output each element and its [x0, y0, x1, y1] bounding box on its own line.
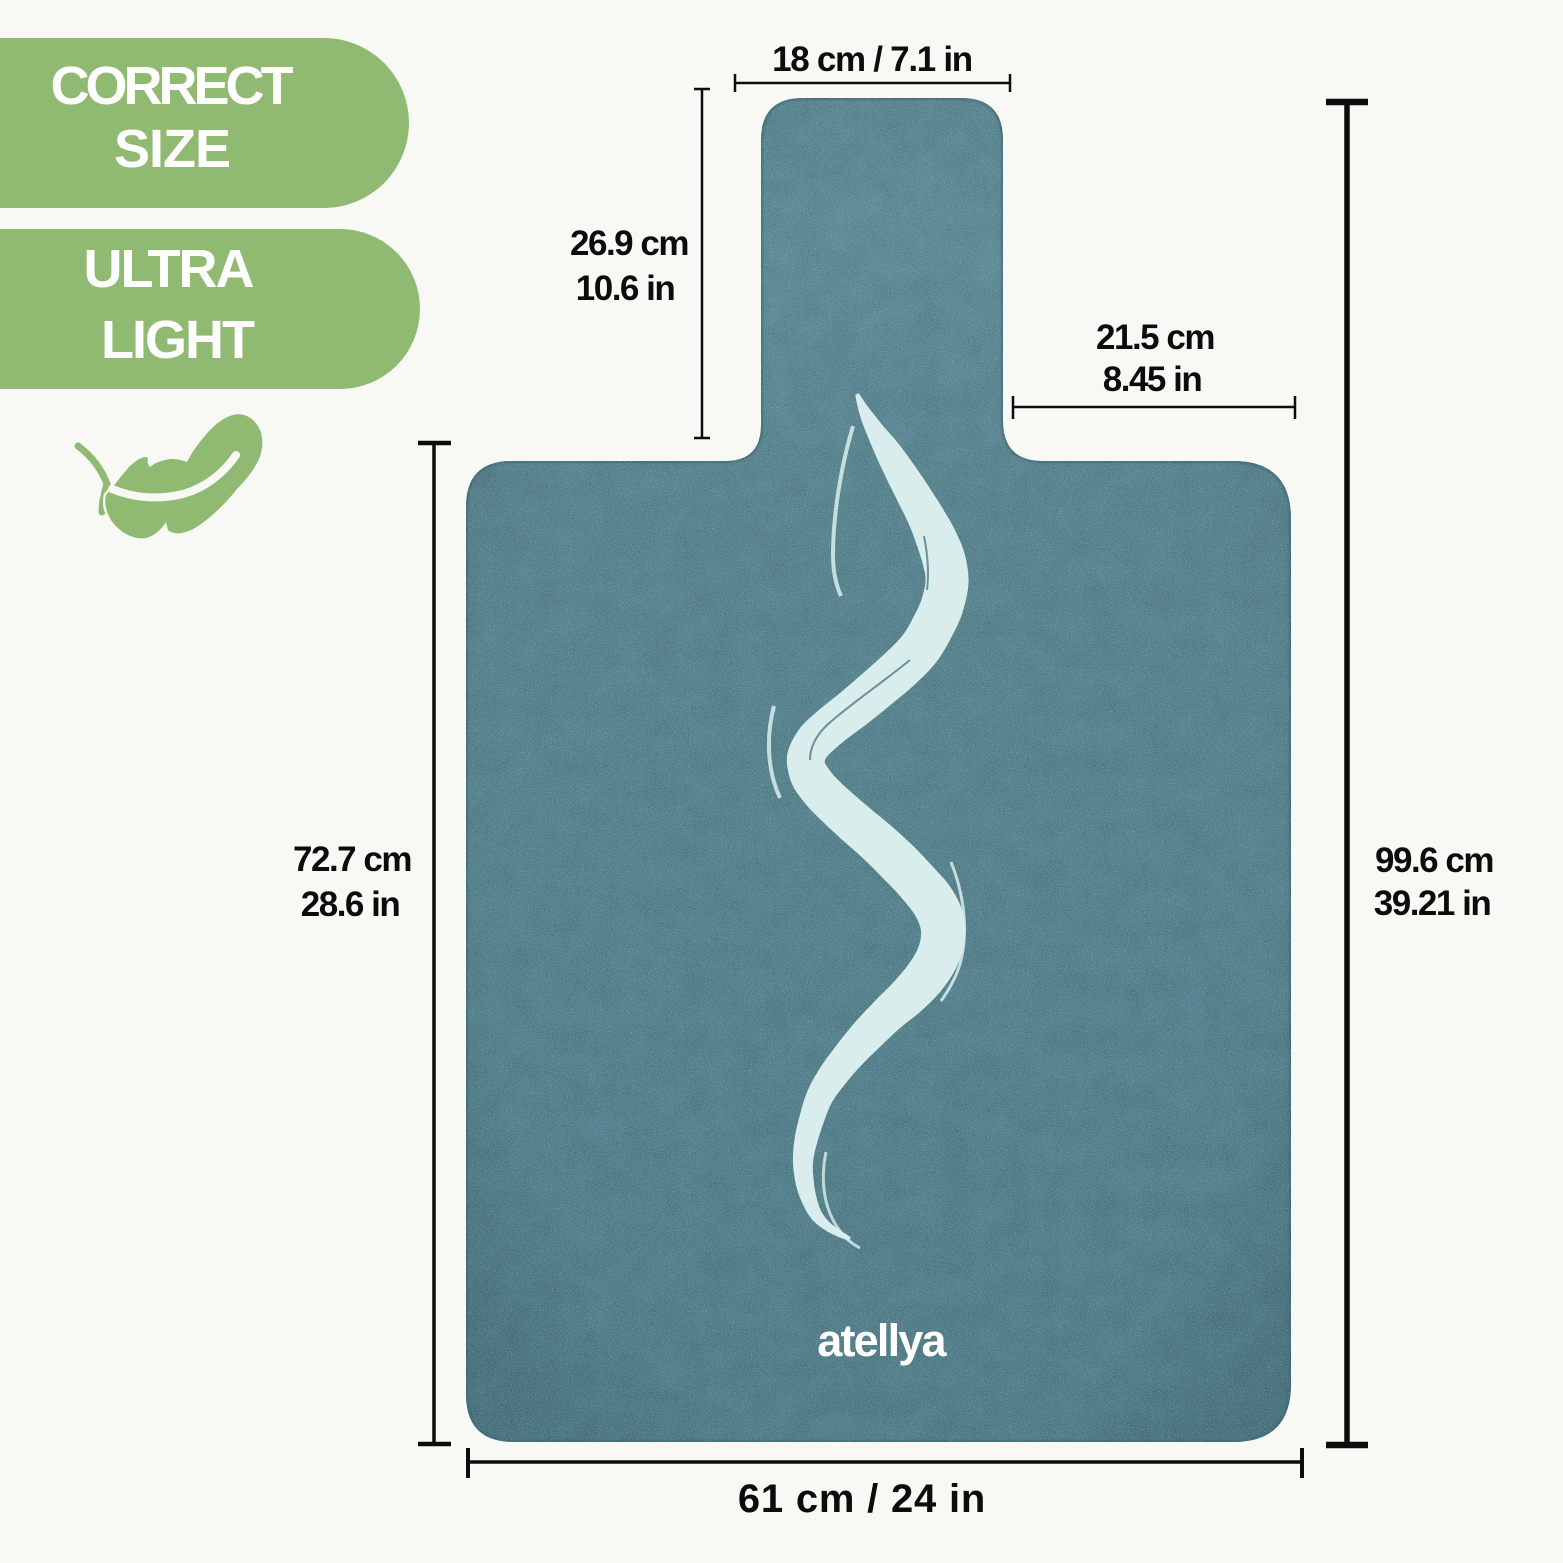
svg-text:ULTRA: ULTRA	[84, 239, 254, 299]
svg-text:28.6 in: 28.6 in	[301, 885, 400, 924]
svg-text:21.5 cm: 21.5 cm	[1096, 318, 1214, 357]
svg-text:99.6 cm: 99.6 cm	[1375, 841, 1493, 880]
svg-text:39.21 in: 39.21 in	[1374, 884, 1491, 923]
svg-text:SIZE: SIZE	[114, 119, 230, 179]
svg-text:26.9 cm: 26.9 cm	[570, 224, 688, 263]
svg-text:CORRECT: CORRECT	[51, 56, 294, 116]
svg-text:8.45 in: 8.45 in	[1103, 360, 1202, 399]
svg-text:LIGHT: LIGHT	[101, 310, 255, 370]
svg-text:61 cm / 24 in: 61 cm / 24 in	[738, 1477, 986, 1521]
svg-text:atellya: atellya	[817, 1315, 947, 1366]
svg-text:10.6 in: 10.6 in	[576, 269, 675, 308]
svg-text:18 cm / 7.1 in: 18 cm / 7.1 in	[772, 40, 972, 79]
svg-text:72.7 cm: 72.7 cm	[293, 840, 411, 879]
